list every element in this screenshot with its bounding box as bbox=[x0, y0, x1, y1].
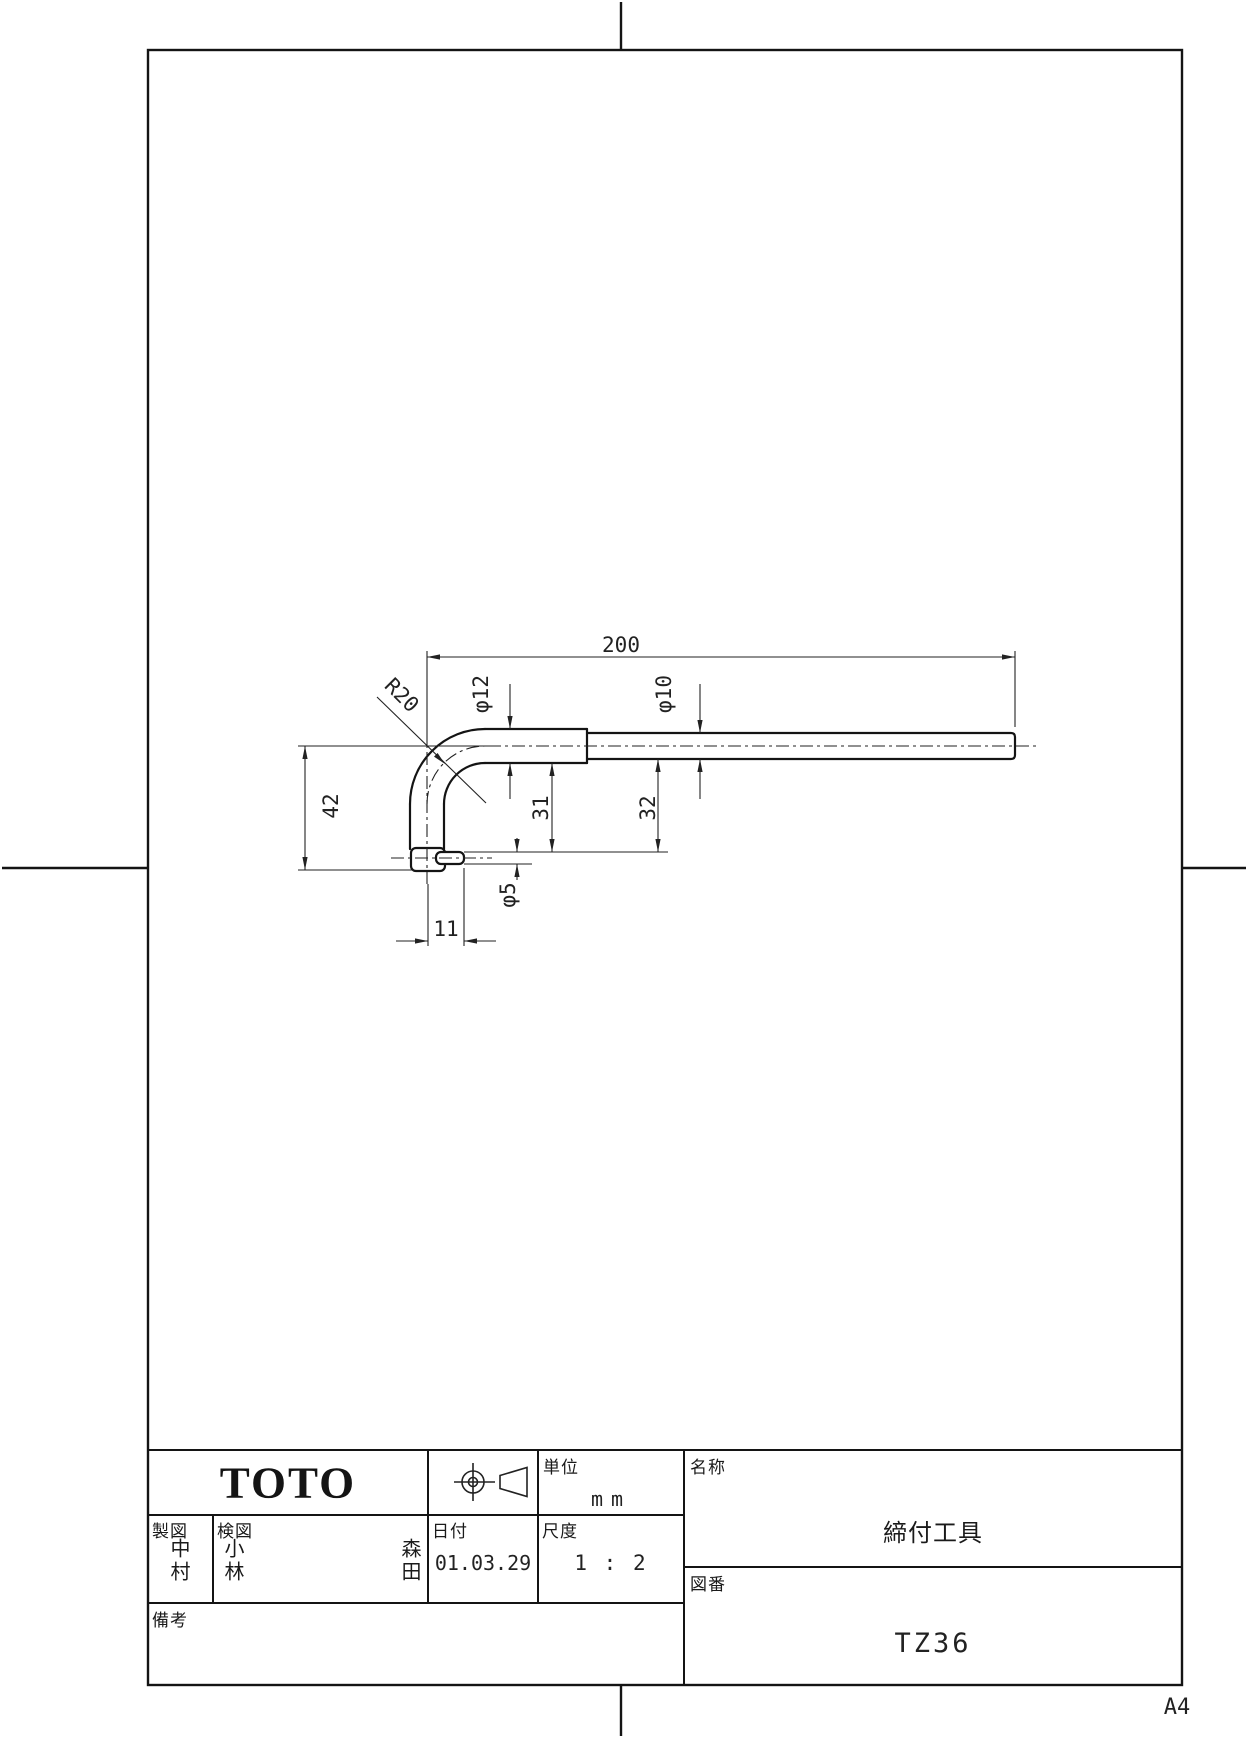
number-label: 図番 bbox=[690, 1570, 726, 1595]
approver-value: 森田 bbox=[399, 1538, 419, 1584]
unit-label: 単位 bbox=[543, 1453, 579, 1478]
name-label: 名称 bbox=[690, 1453, 726, 1478]
sheet-size-label: A4 bbox=[1164, 1695, 1191, 1720]
company-logo-text: TOTO bbox=[220, 1457, 356, 1508]
dim-31: 31 bbox=[529, 795, 553, 820]
unit-value: mm bbox=[538, 1487, 684, 1511]
dim-leg-height: 42 bbox=[319, 793, 343, 818]
dim-dia-large: φ12 bbox=[469, 675, 493, 713]
company-logo: TOTO bbox=[150, 1452, 426, 1513]
dim-bend-radius: R20 bbox=[380, 673, 424, 717]
dim-length: 200 bbox=[602, 633, 640, 657]
scale-label: 尺度 bbox=[542, 1517, 578, 1542]
dim-32: 32 bbox=[636, 795, 660, 820]
center-lines bbox=[391, 746, 1038, 884]
projection-symbol-icon bbox=[454, 1463, 527, 1501]
checker-value: 小林 bbox=[222, 1538, 242, 1584]
drafter-value: 中村 bbox=[168, 1538, 188, 1584]
dim-dia-pin: φ5 bbox=[496, 882, 520, 907]
remarks-label: 備考 bbox=[152, 1606, 188, 1631]
drawing-sheet: 200 42 R20 φ12 φ10 31 32 φ5 11 A4 TOTO 単… bbox=[0, 0, 1248, 1738]
date-label: 日付 bbox=[432, 1517, 468, 1542]
number-value: TZ36 bbox=[684, 1628, 1182, 1659]
scale-value: 1 : 2 bbox=[538, 1551, 684, 1575]
date-value: 01.03.29 bbox=[428, 1551, 538, 1575]
name-value: 締付工具 bbox=[684, 1513, 1182, 1548]
dim-pin-offset: 11 bbox=[433, 917, 458, 941]
part-outline bbox=[410, 729, 1015, 871]
dim-dia-small: φ10 bbox=[652, 675, 676, 713]
